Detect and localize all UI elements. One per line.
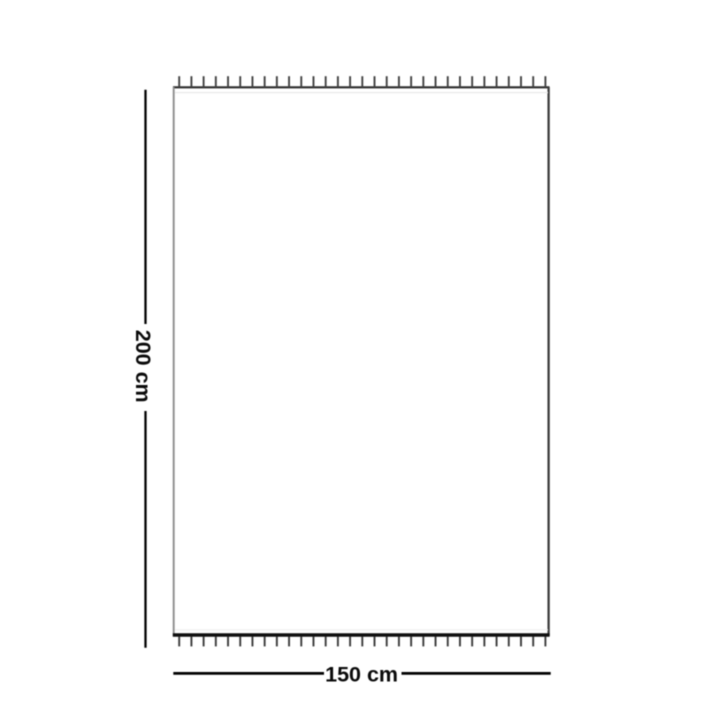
svg-text:150 cm: 150 cm (325, 663, 398, 687)
svg-text:200 cm: 200 cm (131, 330, 155, 403)
